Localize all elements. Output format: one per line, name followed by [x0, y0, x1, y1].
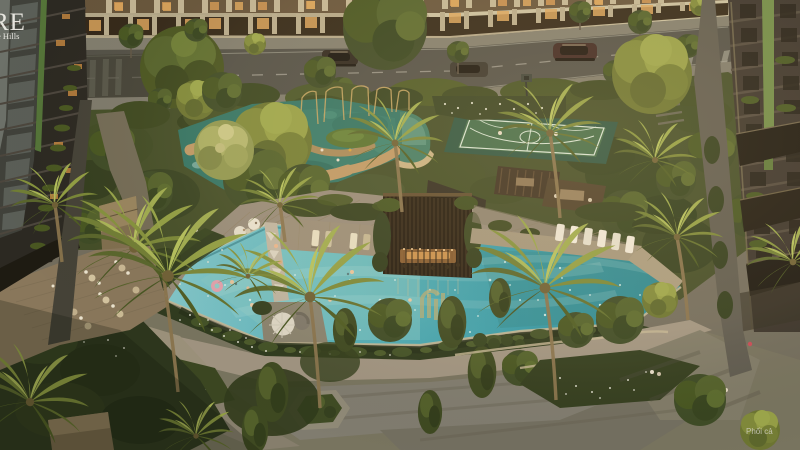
svg-text:e Hills: e Hills — [0, 31, 19, 41]
svg-text:Phối cả: Phối cả — [746, 427, 773, 436]
